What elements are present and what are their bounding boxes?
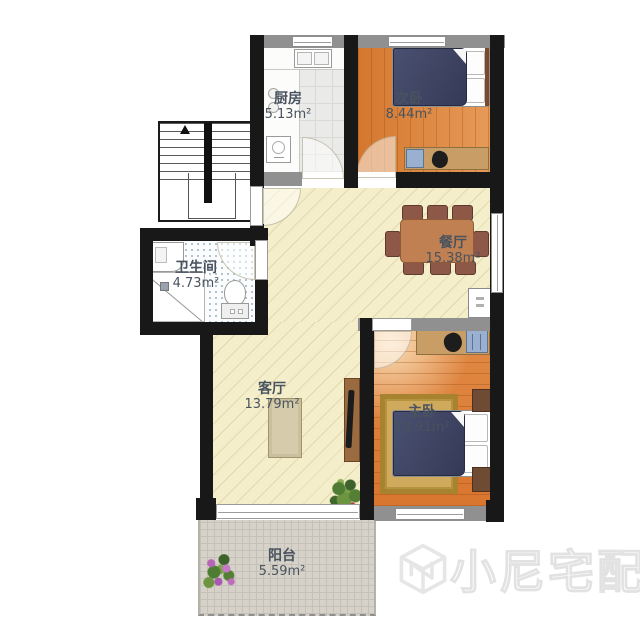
watermark-cube-logo [396,542,450,596]
room-area: 8.44m² [367,108,451,123]
room-label-kitchen: 厨房 5.13m² [246,92,330,122]
wall [486,500,504,522]
room-label-bathroom: 卫生间 4.73m² [154,261,238,291]
fridge-label-line [476,304,484,307]
room-name: 阳台 [240,549,324,565]
room-label-master-bedroom: 主卧 10.91m² [380,405,464,435]
wall [196,498,216,520]
room-area: 5.59m² [240,565,324,580]
watermark: 小尼宅配 [396,536,640,602]
entry-door [250,186,263,226]
fridge [468,288,491,318]
room-label-living: 客厅 13.79m² [230,382,314,412]
balcony-sliding-door [216,504,360,519]
second-bedroom-window [388,36,446,47]
desk-chair [406,149,424,168]
kitchen-window [292,36,333,47]
flush-button [238,309,243,314]
bathroom-door-opening [255,240,268,280]
master-window [395,508,465,520]
stair-return-line [188,173,236,219]
room-name: 主卧 [380,405,464,421]
floorplan: 厨房 5.13m² 次卧 8.44m² 餐厅 15.38m² 卫生间 4.73m… [0,0,640,640]
dining-armchair [385,231,401,257]
flower-plant [200,550,240,594]
wall [360,318,374,520]
wall [140,228,153,335]
small-cabinet [466,330,488,353]
fridge-label-line [476,297,484,300]
room-name: 次卧 [367,92,451,108]
washer-label-line [274,157,284,158]
room-name: 厨房 [246,92,330,108]
room-area: 4.73m² [154,277,238,292]
wall [344,35,358,188]
wall [200,326,213,518]
sink-basin [314,52,329,65]
wall [263,172,302,186]
room-area: 5.13m² [246,108,330,123]
watermark-text: 小尼宅配 [450,536,640,602]
room-name: 餐厅 [411,236,495,252]
sink-basin [297,52,312,65]
room-name: 卫生间 [154,261,238,277]
stair-up-arrow-icon [180,125,190,134]
master-door-opening [372,318,412,331]
staircase [158,121,252,222]
room-name: 客厅 [230,382,314,398]
room-area: 15.38m² [411,252,495,267]
wall [396,172,494,188]
cabinet-line [480,334,481,350]
wall [255,278,268,335]
room-label-dining: 餐厅 15.38m² [411,236,495,266]
room-area: 10.91m² [380,421,464,436]
bed-headboard [485,48,489,106]
toilet-tank [221,303,249,319]
wall [140,228,268,241]
washer-drum [272,141,285,154]
washing-machine [266,136,291,163]
room-area: 13.79m² [230,398,314,413]
cabinet-line [472,334,473,350]
flush-button [230,309,235,314]
room-label-second-bedroom: 次卧 8.44m² [367,92,451,122]
room-label-balcony: 阳台 5.59m² [240,549,324,579]
kitchen-sink [294,49,332,68]
